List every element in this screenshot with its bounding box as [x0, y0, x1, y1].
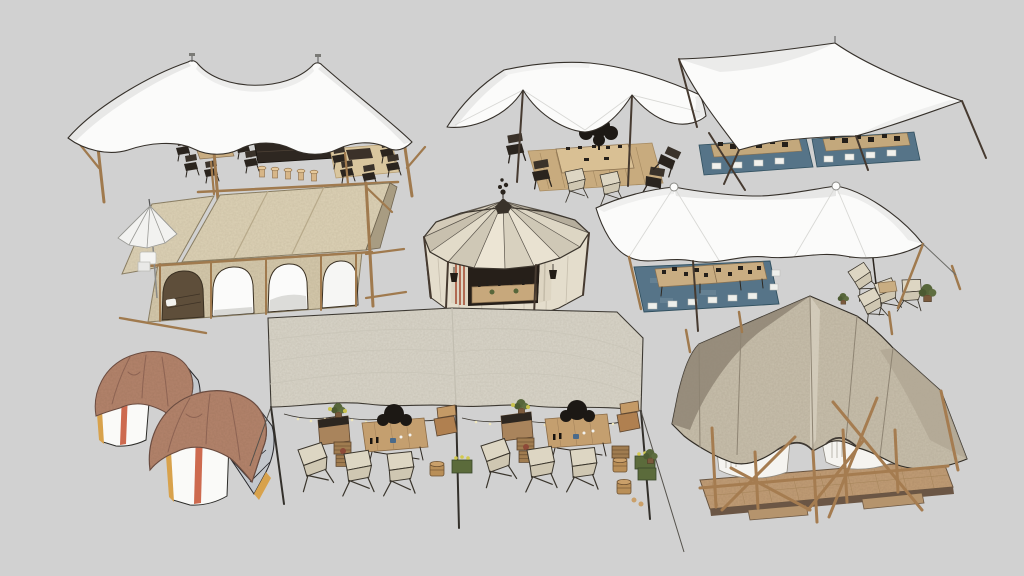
dining-table	[346, 148, 373, 160]
3d-viewport[interactable]	[0, 0, 1024, 576]
scene-canvas[interactable]	[0, 0, 1024, 576]
banquet-table	[713, 262, 767, 283]
bar-counter	[472, 284, 536, 303]
